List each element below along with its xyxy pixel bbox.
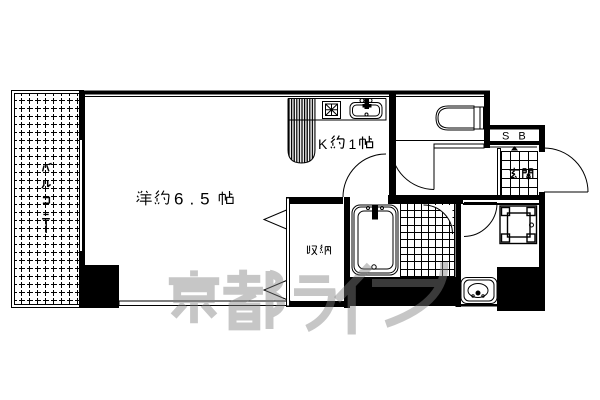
svg-text:1: 1 — [349, 136, 357, 152]
svg-text:6.5: 6.5 — [174, 190, 216, 209]
svg-text:S B: S B — [502, 131, 529, 143]
svg-text:K: K — [318, 136, 328, 152]
